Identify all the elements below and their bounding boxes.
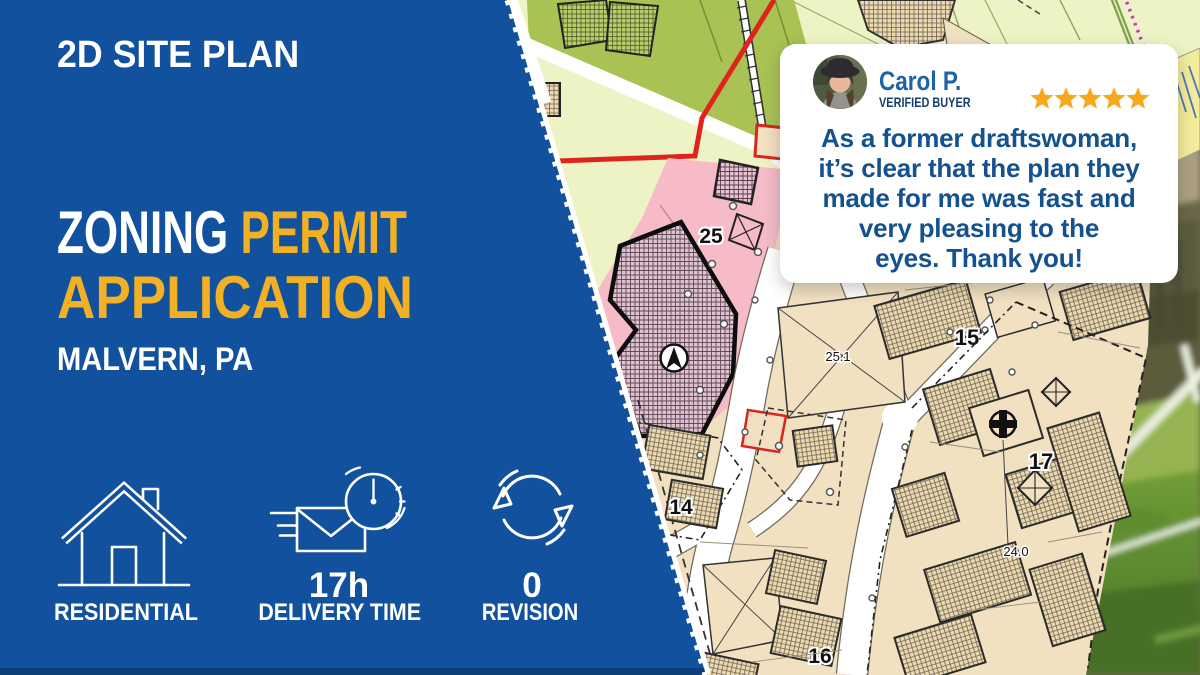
svg-text:25.1: 25.1 xyxy=(825,349,850,364)
svg-text:17: 17 xyxy=(1029,449,1053,474)
svg-text:24.0: 24.0 xyxy=(1003,544,1028,559)
svg-text:25: 25 xyxy=(699,225,723,248)
svg-text:14: 14 xyxy=(669,496,693,519)
svg-text:15: 15 xyxy=(955,325,979,350)
svg-text:16: 16 xyxy=(808,645,831,668)
